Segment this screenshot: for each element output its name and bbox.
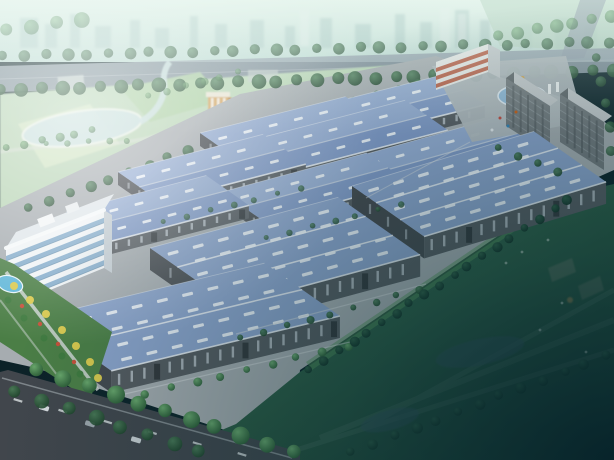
- rendering-canvas: [0, 0, 614, 460]
- aerial-rendering-industrial-park: [0, 0, 614, 460]
- dark-corner-overlay: [0, 0, 614, 460]
